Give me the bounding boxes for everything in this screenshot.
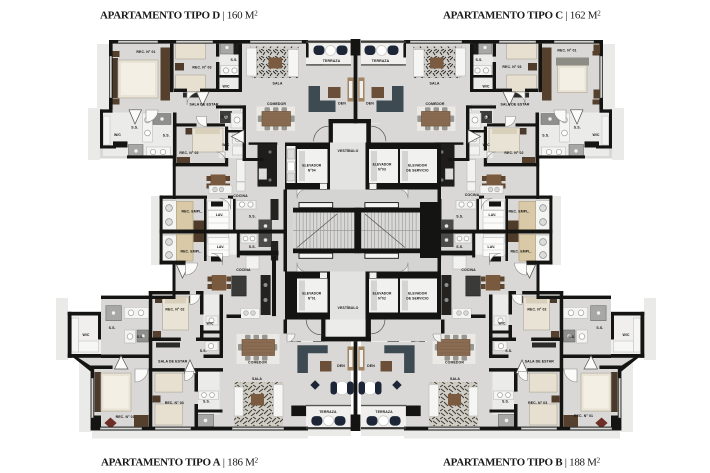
svg-text:W/C: W/C: [622, 333, 629, 337]
svg-text:S.S.: S.S.: [574, 125, 581, 129]
svg-text:TERRAZA: TERRAZA: [372, 59, 390, 63]
svg-text:TERRAZA: TERRAZA: [319, 410, 337, 414]
svg-text:LAV.: LAV.: [488, 245, 496, 249]
svg-text:COMEDOR: COMEDOR: [248, 361, 267, 365]
svg-text:COCINA: COCINA: [236, 268, 251, 272]
svg-text:REC. EMPL.: REC. EMPL.: [181, 210, 202, 214]
svg-text:DE SERVICIO: DE SERVICIO: [406, 169, 429, 173]
svg-text:SALA: SALA: [430, 82, 440, 86]
svg-text:S.S.: S.S.: [502, 400, 509, 404]
svg-text:REC. N° 01: REC. N° 01: [136, 50, 155, 54]
svg-text:SALA DE ESTAR: SALA DE ESTAR: [500, 102, 529, 106]
svg-text:REC. N° 01: REC. N° 01: [116, 415, 135, 419]
svg-text:ELEVADOR: ELEVADOR: [373, 292, 392, 296]
svg-text:LAV.: LAV.: [217, 245, 225, 249]
svg-text:N°01: N°01: [308, 297, 316, 301]
svg-text:ELEVADOR: ELEVADOR: [302, 292, 321, 296]
svg-text:S.S.: S.S.: [456, 215, 463, 219]
svg-text:S.S.: S.S.: [249, 245, 256, 249]
svg-text:S.S.: S.S.: [484, 115, 491, 119]
svg-text:W/C: W/C: [207, 322, 214, 326]
svg-text:COCINA: COCINA: [233, 194, 248, 198]
svg-text:SALA DE ESTAR: SALA DE ESTAR: [189, 103, 218, 107]
svg-text:VESTÍBULO: VESTÍBULO: [338, 305, 359, 310]
svg-text:COCINA: COCINA: [461, 268, 476, 272]
svg-text:COMEDOR: COMEDOR: [445, 361, 464, 365]
svg-text:DE SERVICIO: DE SERVICIO: [406, 297, 429, 301]
svg-text:W/C: W/C: [82, 333, 89, 337]
svg-text:ELEVADOR: ELEVADOR: [408, 164, 427, 168]
svg-text:ELEVADOR: ELEVADOR: [302, 164, 321, 168]
svg-text:ELEVADOR: ELEVADOR: [373, 163, 392, 167]
svg-text:REC. EMPL.: REC. EMPL.: [510, 250, 531, 254]
svg-text:W/C: W/C: [222, 143, 229, 147]
svg-text:REC. N° 03: REC. N° 03: [502, 65, 521, 69]
svg-text:S.S.: S.S.: [568, 335, 575, 339]
svg-text:REC. N° 02: REC. N° 02: [165, 308, 184, 312]
svg-text:S.S.: S.S.: [505, 349, 512, 353]
svg-text:REC. N° 03: REC. N° 03: [528, 401, 547, 405]
svg-text:TERRAZA: TERRAZA: [323, 59, 341, 63]
svg-text:W/C: W/C: [482, 85, 489, 89]
svg-text:S.S.: S.S.: [200, 349, 207, 353]
svg-text:S.S.: S.S.: [456, 245, 463, 249]
svg-text:S.S.: S.S.: [221, 115, 228, 119]
svg-text:DEN: DEN: [337, 364, 345, 368]
svg-text:SALA: SALA: [273, 82, 283, 86]
svg-text:SALA: SALA: [450, 377, 460, 381]
svg-text:REC. N° 01: REC. N° 01: [557, 49, 576, 53]
svg-text:S.S.: S.S.: [596, 326, 603, 330]
svg-text:W/C: W/C: [483, 143, 490, 147]
svg-text:TERRAZA: TERRAZA: [375, 410, 393, 414]
svg-text:W/C: W/C: [592, 133, 599, 137]
svg-text:N°04: N°04: [308, 169, 316, 173]
svg-text:SALA: SALA: [252, 377, 262, 381]
svg-text:W/C: W/C: [498, 322, 505, 326]
svg-text:S.S.: S.S.: [131, 125, 138, 129]
svg-text:S.S.: S.S.: [163, 134, 170, 138]
svg-text:N°02: N°02: [378, 297, 386, 301]
svg-text:REC. N° 01: REC. N° 01: [574, 414, 593, 418]
svg-text:COMEDOR: COMEDOR: [426, 102, 445, 106]
svg-text:S.S.: S.S.: [203, 400, 210, 404]
svg-text:LAV.: LAV.: [489, 213, 497, 217]
svg-text:S.S.: S.S.: [137, 335, 144, 339]
svg-text:DEN: DEN: [366, 102, 374, 106]
svg-text:VESTÍBULO: VESTÍBULO: [338, 148, 359, 153]
svg-text:S.S.: S.S.: [230, 58, 237, 62]
svg-text:S.S.: S.S.: [542, 134, 549, 138]
svg-text:APARTAMENTO TIPO A | 186 M2: APARTAMENTO TIPO A | 186 M2: [101, 457, 259, 469]
svg-text:W/C: W/C: [114, 133, 121, 137]
svg-text:COCINA: COCINA: [465, 193, 480, 197]
svg-text:REC. N° 02: REC. N° 02: [527, 308, 546, 312]
svg-text:N°03: N°03: [378, 168, 386, 172]
svg-text:REC. N° 03: REC. N° 03: [192, 65, 211, 69]
svg-text:LAV.: LAV.: [216, 213, 224, 217]
svg-text:REC. N° 03: REC. N° 03: [165, 401, 184, 405]
svg-text:S.S.: S.S.: [109, 326, 116, 330]
svg-text:APARTAMENTO TIPO D | 160 M2: APARTAMENTO TIPO D | 160 M2: [100, 10, 258, 22]
svg-text:DEN: DEN: [367, 364, 375, 368]
svg-text:S.S.: S.S.: [475, 58, 482, 62]
svg-text:REC. N° 02: REC. N° 02: [504, 151, 523, 155]
svg-text:DEN: DEN: [338, 102, 346, 106]
svg-text:W/C: W/C: [222, 85, 229, 89]
svg-text:REC. EMPL.: REC. EMPL.: [508, 210, 529, 214]
svg-text:ELEVADOR: ELEVADOR: [408, 292, 427, 296]
svg-text:REC. N° 02: REC. N° 02: [179, 151, 198, 155]
svg-text:APARTAMENTO TIPO C | 162 M2: APARTAMENTO TIPO C | 162 M2: [443, 10, 601, 22]
svg-text:S.S.: S.S.: [249, 215, 256, 219]
svg-text:REC. EMPL.: REC. EMPL.: [180, 250, 201, 254]
svg-text:SALA DE ESTAR: SALA DE ESTAR: [158, 360, 187, 364]
svg-text:SALA DE ESTAR: SALA DE ESTAR: [525, 360, 554, 364]
svg-text:COMEDOR: COMEDOR: [267, 102, 286, 106]
svg-text:APARTAMENTO TIPO B | 188 M2: APARTAMENTO TIPO B | 188 M2: [443, 457, 601, 469]
